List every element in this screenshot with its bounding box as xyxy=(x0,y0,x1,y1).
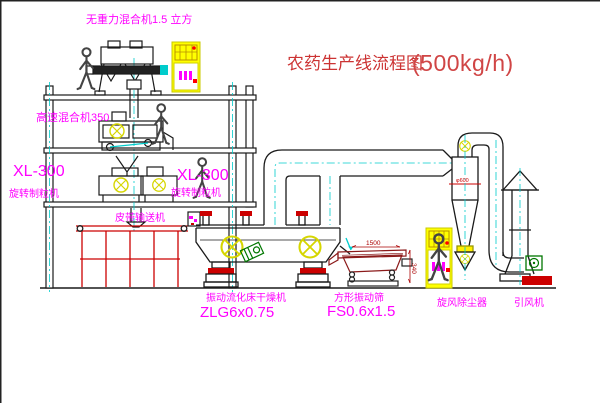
label-sieve-model: FS0.6x1.5 xyxy=(327,303,395,320)
label-granulator-right-model: XL-300 xyxy=(177,167,229,184)
label-dryer-model: ZLG6x0.75 xyxy=(200,304,274,321)
diagram-title: 农药生产线流程图 xyxy=(287,54,423,73)
diagram-title-capacity: (500kg/h) xyxy=(412,50,514,76)
label-fan: 引风机 xyxy=(514,296,544,309)
dim-cyclone-diameter: φ600 xyxy=(456,178,469,184)
diagram-canvas: 农药生产线流程图 (500kg/h) 无重力混合机1.5 立方 高速混合机350… xyxy=(0,0,600,403)
dryer-feed-inlet xyxy=(188,212,200,226)
label-gravityless-mixer: 无重力混合机1.5 立方 xyxy=(86,12,192,26)
label-dryer-name: 振动流化床干燥机 xyxy=(206,291,286,304)
dim-sieve-length: 1500 xyxy=(366,240,381,247)
process-flow-diagram: 农药生产线流程图 (500kg/h) 无重力混合机1.5 立方 高速混合机350… xyxy=(0,0,600,403)
fan-drawing xyxy=(522,256,552,285)
exhaust-duct xyxy=(264,150,452,225)
control-cabinet-top xyxy=(172,42,200,92)
dim-sieve-height: 340 xyxy=(410,263,417,274)
cabinet-logo xyxy=(179,71,192,80)
cyclone-drawing xyxy=(449,133,524,272)
label-granulator-left-model: XL-300 xyxy=(13,163,65,180)
label-belt-conveyor: 皮带输送机 xyxy=(115,211,165,224)
granulator-symbol-left xyxy=(114,178,128,192)
belt-conveyor-drawing xyxy=(76,226,188,287)
mixer-symbol xyxy=(110,124,124,138)
fluid-bed-dryer-drawing xyxy=(196,211,350,287)
indicator-dot xyxy=(445,241,449,245)
gravityless-mixer-drawing xyxy=(86,41,168,118)
label-cyclone: 旋风除尘器 xyxy=(437,296,487,309)
granulator-symbol-right xyxy=(153,179,166,192)
vibration-motor xyxy=(240,242,263,261)
label-high-speed-mixer: 高速混合机350 xyxy=(36,110,109,124)
stack-drawing xyxy=(500,171,539,281)
label-granulator-left-name: 旋转制粒机 xyxy=(9,187,59,200)
indicator-dot xyxy=(192,46,196,50)
label-granulator-right-name: 旋转制粒机 xyxy=(171,186,221,199)
